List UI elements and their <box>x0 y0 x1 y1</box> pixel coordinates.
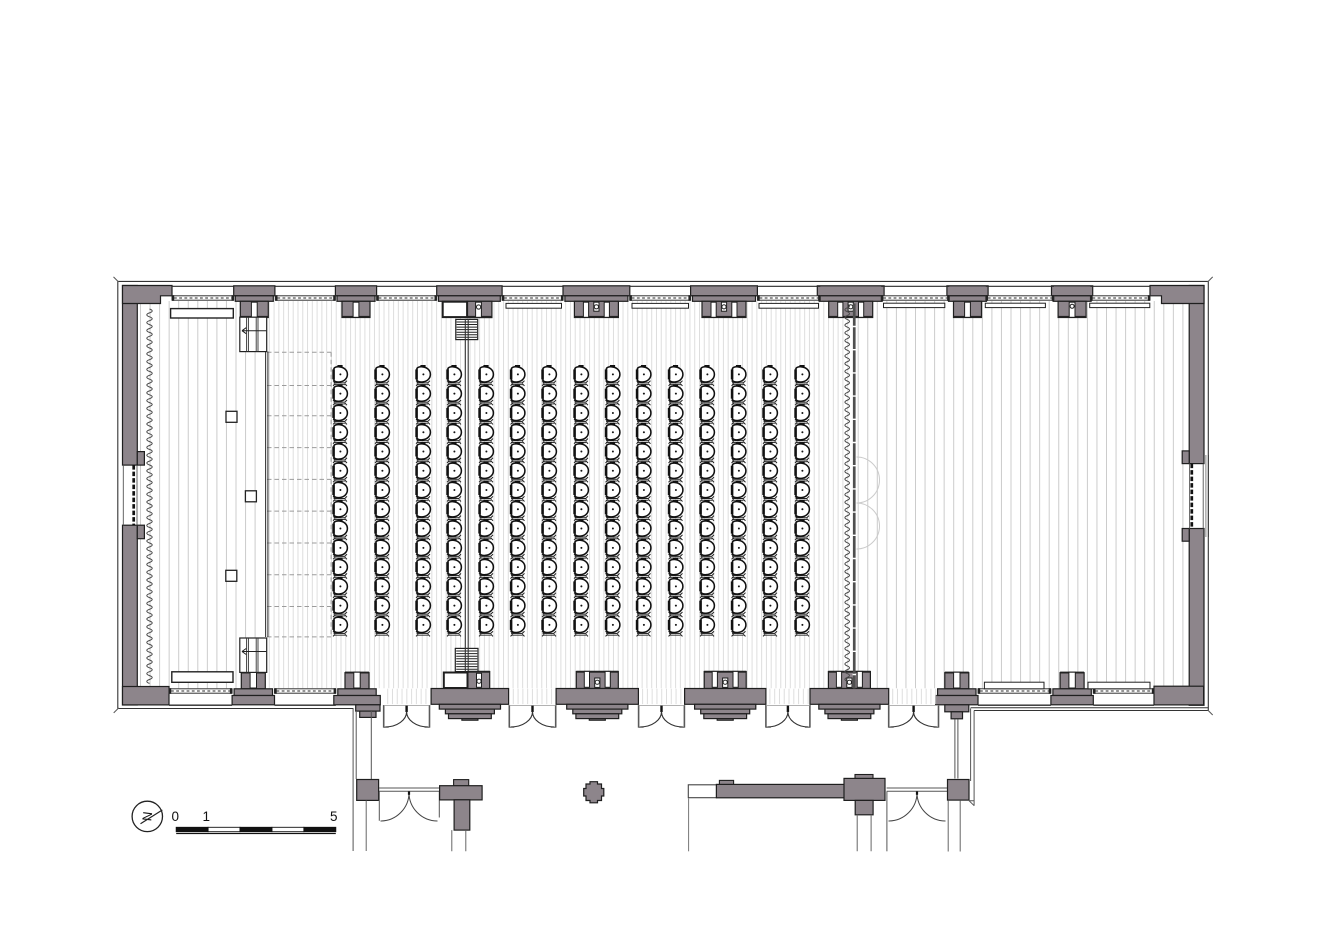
svg-text:0: 0 <box>172 809 180 824</box>
svg-text:5: 5 <box>330 809 338 824</box>
svg-text:1: 1 <box>202 809 210 824</box>
